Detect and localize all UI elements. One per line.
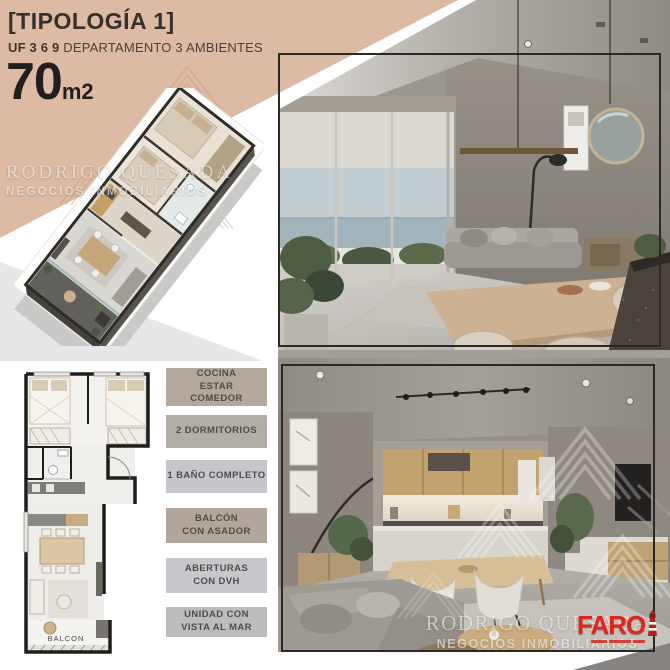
area-unit: m2 [62, 79, 94, 104]
page-title: [TIPOLOGÍA 1] [8, 8, 175, 35]
faro-logo: FARO [577, 610, 659, 643]
balcony-label: BALCON [48, 634, 85, 643]
feature-line: VISTA AL MAR [181, 622, 252, 635]
feature-box-cocina-estar-comedor: COCINA ESTAR COMEDOR [166, 368, 267, 406]
faro-tagline [591, 640, 645, 643]
feature-line: CON ASADOR [182, 526, 251, 539]
feature-line: BALCÓN [195, 513, 238, 526]
feature-line: ABERTURAS [185, 563, 248, 576]
photo-frame-top [278, 53, 661, 347]
feature-line: 1 BAÑO COMPLETO [167, 470, 265, 483]
feature-box-bano: 1 BAÑO COMPLETO [166, 460, 267, 493]
isometric-floorplan [14, 88, 264, 346]
feature-box-vista-mar: UNIDAD CON VISTA AL MAR [166, 607, 267, 637]
photo-divider [278, 350, 670, 358]
area-value: 70m2 [6, 52, 94, 112]
lighthouse-icon [646, 610, 659, 638]
feature-line: 2 DORMITORIOS [176, 425, 257, 438]
feature-line: COMEDOR [190, 393, 242, 406]
feature-line: ESTAR [200, 381, 234, 394]
floorplan-2d: BALCON [8, 362, 160, 662]
faro-wordmark: FARO [577, 612, 645, 638]
feature-box-aberturas: ABERTURAS CON DVH [166, 558, 267, 593]
feature-box-balcon: BALCÓN CON ASADOR [166, 508, 267, 543]
photo-frame-bottom [281, 364, 655, 652]
flyer-canvas: [TIPOLOGÍA 1] UF 3 6 9 DEPARTAMENTO 3 AM… [0, 0, 670, 670]
feature-box-dormitorios: 2 DORMITORIOS [166, 415, 267, 448]
feature-line: CON DVH [193, 576, 240, 589]
feature-line: UNIDAD CON [184, 609, 249, 622]
area-number: 70 [6, 53, 62, 111]
feature-line: COCINA [197, 368, 237, 381]
